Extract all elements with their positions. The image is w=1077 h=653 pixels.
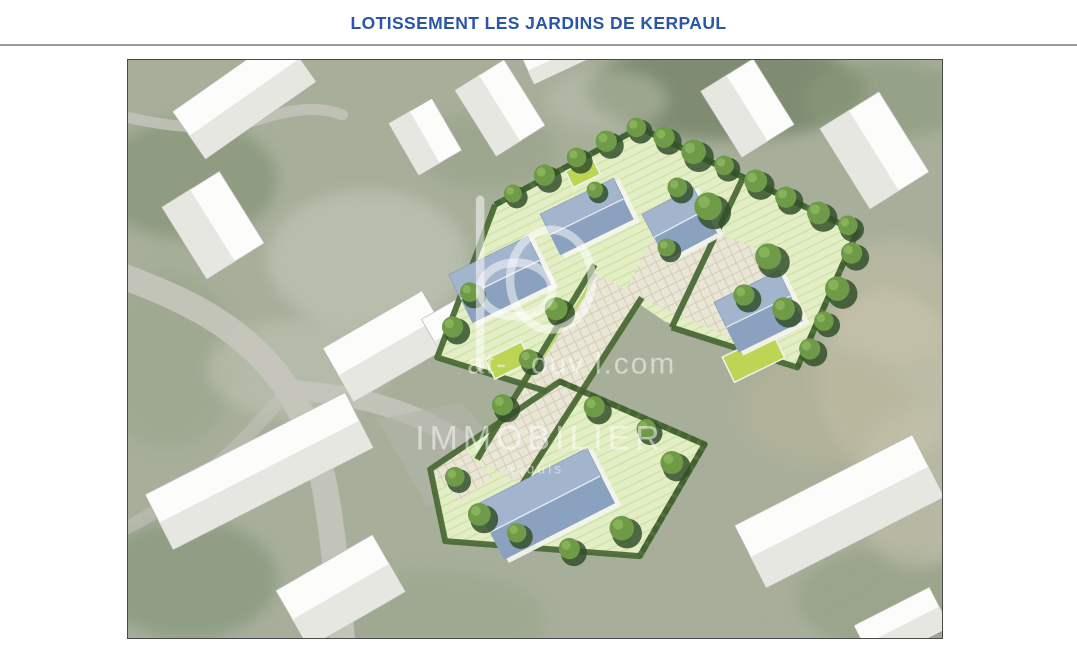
title-separator-line [0,44,1077,46]
brochure-page: LOTISSEMENT LES JARDINS DE KERPAUL [0,0,1077,653]
page-title: LOTISSEMENT LES JARDINS DE KERPAUL [0,13,1077,34]
watermark-domain-fragment: ouv [531,347,585,380]
watermark-brand: IMMOBILIER [415,419,665,457]
watermark-domain-fragment: l.com [595,347,676,380]
aerial-3d-view: at- ouv l.com IMMOBILIER acquis [127,59,943,639]
watermark-tagline: acquis [506,460,564,476]
aerial-illustration: at- ouv l.com IMMOBILIER acquis [128,60,942,638]
watermark-domain-fragment: at- [467,347,508,380]
